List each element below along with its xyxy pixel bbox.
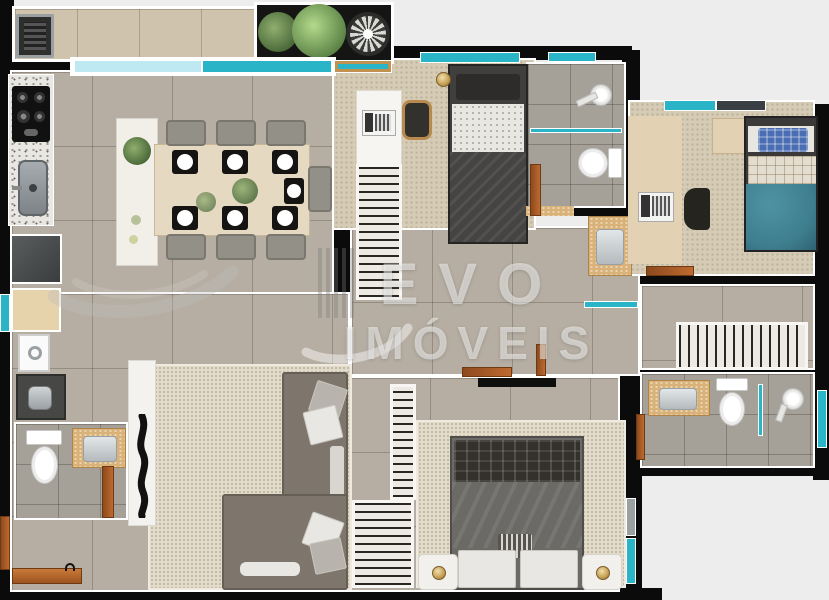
toilet-tank xyxy=(26,430,62,445)
plaid-sheet xyxy=(748,156,816,184)
watermark-swirl-large xyxy=(36,238,246,330)
dining-chair xyxy=(266,120,306,146)
bedroom2-window-dark xyxy=(716,100,766,111)
faucet-icon xyxy=(12,186,22,190)
laptop-keys xyxy=(375,114,391,131)
bedroom1-window xyxy=(420,52,520,63)
burner-icon xyxy=(34,111,45,122)
door-entrance xyxy=(0,516,10,570)
double-bed xyxy=(450,436,584,590)
decor-dot xyxy=(131,215,141,225)
laptop-icon xyxy=(362,110,396,136)
burner-icon xyxy=(17,110,30,123)
bed-sheet xyxy=(452,104,524,152)
sink-drain xyxy=(29,184,37,192)
laptop-screen xyxy=(365,113,373,132)
side-cabinet xyxy=(712,118,748,154)
tv-master xyxy=(478,378,556,387)
lamp-icon xyxy=(436,72,451,87)
table-centerpiece-plant xyxy=(196,192,216,212)
bathroom1-window xyxy=(548,52,596,62)
placemat xyxy=(272,150,298,174)
toilet xyxy=(719,392,745,426)
teal-blanket xyxy=(746,184,816,250)
watermark: EVO IMÓVEIS xyxy=(276,256,666,366)
sofa-pillow xyxy=(309,537,347,575)
door-bathroom-1 xyxy=(530,164,541,216)
bed-pillow xyxy=(458,550,516,588)
shower-glass xyxy=(758,384,763,436)
washing-machine xyxy=(18,334,50,372)
console-handle xyxy=(65,563,75,571)
bed-duvet xyxy=(450,152,526,242)
table-centerpiece-plant xyxy=(232,178,258,204)
desk-chair xyxy=(402,100,432,140)
watermark-line2: IMÓVEIS xyxy=(276,320,666,366)
toilet-tank xyxy=(608,148,622,178)
placemat xyxy=(272,206,298,230)
sofa-main xyxy=(222,494,348,590)
laundry-counter xyxy=(16,374,66,420)
wardrobe-hangers xyxy=(676,322,808,370)
grill-grate xyxy=(24,22,46,50)
fan-hub xyxy=(363,29,373,39)
placemat xyxy=(172,150,198,174)
bed-pillow xyxy=(456,74,520,100)
vanity-counter xyxy=(648,380,710,416)
tv-icon xyxy=(130,414,154,518)
desk xyxy=(628,116,682,264)
floor-plan-render: EVO IMÓVEIS xyxy=(0,0,829,600)
vanity-sink xyxy=(659,388,697,410)
single-bed-2 xyxy=(744,116,818,252)
bedroom2-window xyxy=(664,100,716,111)
wood-threshold xyxy=(334,60,392,73)
single-bed-1 xyxy=(448,64,528,244)
dining-chair xyxy=(166,120,206,146)
laptop-screen xyxy=(641,195,650,217)
toilet-tank xyxy=(716,378,748,391)
balcony-slider-glass xyxy=(74,60,202,73)
vanity-sink xyxy=(83,436,117,462)
door-bathroom-3 xyxy=(636,414,645,460)
door-bathroom-left xyxy=(102,466,114,518)
seat-bolster xyxy=(240,562,300,576)
laptop-keys xyxy=(652,196,670,216)
bathroom3-window xyxy=(817,390,827,448)
toilet xyxy=(31,446,58,484)
wardrobe-hangers xyxy=(352,500,414,588)
shower-glass xyxy=(530,128,622,133)
nightstand xyxy=(582,554,622,590)
plant-icon xyxy=(123,137,151,165)
lamp-icon xyxy=(432,566,446,580)
burner-icon xyxy=(34,92,45,103)
lamp-icon xyxy=(596,566,610,580)
watermark-line1: EVO xyxy=(276,256,666,314)
desk-chair xyxy=(684,188,710,230)
washer-drum xyxy=(28,346,42,360)
dining-chair xyxy=(216,120,256,146)
placemat xyxy=(284,178,304,204)
placemat xyxy=(222,206,248,230)
cooktop-control xyxy=(24,129,38,136)
plaid-pillow xyxy=(758,128,808,152)
kitchen-sink xyxy=(18,160,48,216)
wardrobe-hangers xyxy=(390,384,416,500)
plaid-throw xyxy=(454,440,580,482)
dining-chair xyxy=(308,166,332,212)
laptop-icon xyxy=(638,192,674,222)
nightstand xyxy=(418,554,458,590)
threshold-glass xyxy=(338,64,388,69)
ceiling-fan-icon xyxy=(346,12,390,56)
hall-console xyxy=(12,568,82,584)
bathroom1-floor xyxy=(526,62,626,208)
toilet xyxy=(578,148,608,178)
vanity-counter xyxy=(72,428,126,468)
burner-icon xyxy=(17,92,28,103)
bbq-grill xyxy=(16,14,54,58)
balcony-slider-glass2 xyxy=(202,60,332,73)
placemat xyxy=(172,206,198,230)
placemat xyxy=(222,150,248,174)
laundry-sink xyxy=(28,386,52,410)
master-window-pane xyxy=(626,498,636,536)
cooktop xyxy=(12,86,50,142)
master-window xyxy=(626,538,636,584)
kitchen-side-window xyxy=(0,294,10,332)
bed-pillow xyxy=(520,550,578,588)
palm-plant-icon xyxy=(292,4,346,58)
